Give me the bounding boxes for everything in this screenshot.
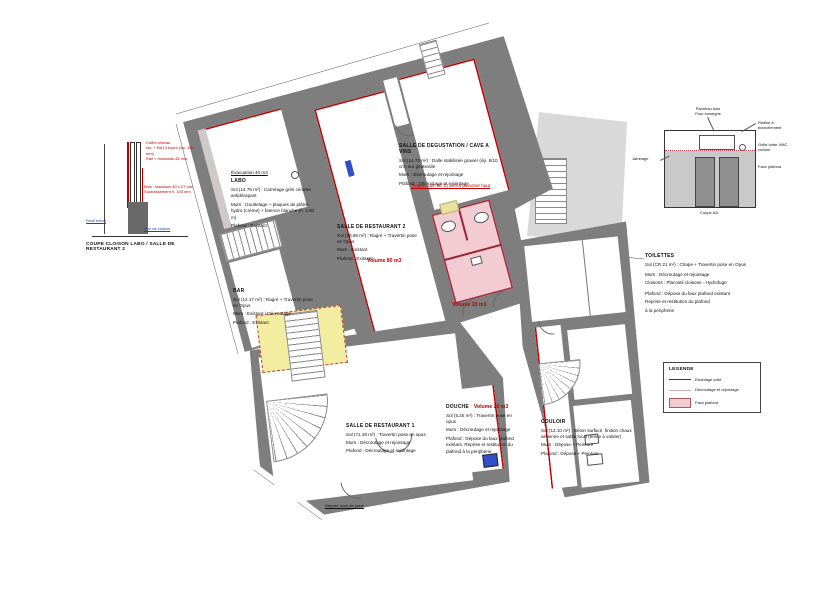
doublage-swatch [669,379,691,380]
elevation-frame [664,130,756,208]
detail-coupe-cloison: Coffre réseau Iso. + BA13 hydro (ép. 100… [86,138,201,250]
room-note: Évacuation 40 m3 [231,170,315,177]
section-note-blue: Seuil béton [86,218,122,223]
legend-item: Faux plafond [669,398,755,408]
label-labo: Évacuation 40 m3 LABO Sol (14.76 m²) : C… [231,170,315,231]
detail-caption: Coupe AA [664,210,754,215]
note-line: Rail + montants 48 mm [146,156,200,161]
room-sol: Sol (12.10 m²) : Béton surfacé, finition… [541,428,633,441]
room-cloisons: Cloisons : Placostil cloisons - Hydrofug… [645,280,775,287]
partition [582,240,591,316]
door-leaf [719,157,739,207]
elevation-note: Platine à branchement [758,120,796,131]
floor-plan-canvas: Coffre réseau Iso. + BA13 hydro (ép. 100… [0,0,834,590]
room-name: SALLE DE RESTAURANT 1 [346,423,441,429]
volume-restaurant2: Volume 80 m3 [367,258,402,264]
volume-douche: Volume 26 m3 [474,404,509,410]
room-murs: Murs : Décroutage et rejointage [346,440,441,447]
section-note-red: Bois : tasseaux 40 x 27 mm Soubassement … [144,184,200,195]
room-murs: Murs : Décroutage et rejointage [446,427,520,434]
room-name: DOUCHE [446,404,469,410]
label-couloir: COULOIR Sol (12.10 m²) : Béton surfacé, … [541,419,633,459]
room-sol: Sol (5.25 m²) : Travertin pose en opus [446,413,520,426]
note-trappe: Trappe (dim 80 S) accès plancher haut [411,183,503,190]
volume-toilettes: Volume 20 m3 [452,302,487,308]
leader-line [707,117,714,130]
note-line: Iso. + BA13 hydro (ép. 100 mm) [146,145,200,156]
note-seuil: Reprise seuil de porte [325,503,373,508]
room-name: COULOIR [541,419,633,425]
room-name: SALLE DE DEGUSTATION / CAVE A VINS [399,143,501,155]
room-murs: Murs : Gouttelage + plaques de plâtre hy… [231,202,315,222]
legend-title: LEGENDE [669,367,755,372]
room-name: TOILETTES [645,253,775,259]
label-bar: BAR Sol (12.17 m²) : Ragré + Travertin p… [233,288,317,328]
legend: LEGENDE Doublage collé Décroutage et rej… [663,362,761,413]
note-line: Pour enseigne [686,111,730,116]
wc-fixture [440,219,457,234]
room-plafond: Plafond : Décroutage et rejointage [346,448,441,455]
decroutage-swatch [669,390,691,391]
section-note-blue: Nez de cloison [144,226,188,231]
room-murs: Murs : Existant / Décroutage [233,311,317,318]
room-murs: Murs : Dépose + Peinture [541,442,633,449]
room-murs: Murs : Décroutage et rejointage [645,272,775,279]
room-plafond: Plafond : Existant [233,320,317,327]
room-sol: Sol (14.73 m²) : Dalle stabilisée gravie… [399,158,501,171]
room-right-upper [524,236,625,321]
room-sol: Sol (14.76 m²) : Carrelage grès cérame a… [231,187,315,200]
faux-plafond-swatch [669,398,691,408]
legend-label: Faux plafond [695,400,718,405]
room-name: BAR [233,288,317,294]
room-sol: Sol (71.26 m²) : Travertin pose en opus [346,432,441,439]
spot-circle [739,144,746,151]
room-murs: Murs : Décroutage et rejointage [399,172,501,179]
note-line: Soubassement h. 100 mm [144,189,200,194]
room-plafond: Plafond : Dépose du faux plafond existan… [446,436,520,456]
wc-partition [458,207,469,240]
room-plafond: Plafond : Dépose + Peinture [541,451,633,458]
room-sol: Sol (CR.21 m²) : Chape + Travertin pose … [645,262,775,269]
elevation-note: Panneau bois Pour enseigne [686,106,730,117]
doublage-line [127,142,129,208]
label-restaurant1: SALLE DE RESTAURANT 1 Sol (71.26 m²) : T… [346,423,441,456]
elevation-note: Jambage [632,156,662,161]
section-note-red: Coffre réseau Iso. + BA13 hydro (ép. 100… [146,140,200,162]
note-circle [291,171,299,179]
signage-box [699,135,735,150]
room-sol: Sol (12.17 m²) : Ragré + Travertin pose … [233,297,317,310]
legend-item: Décroutage et rejointage [669,387,755,392]
elevation-note: Grille hotte VMC cuisine [758,142,794,153]
room-name: SALLE DE RESTAURANT 2 [337,224,417,230]
wc-fixture [473,210,490,225]
room-plafond: Plafond : Existant [231,223,315,230]
room-name: LABO [231,178,315,184]
elevation-note: Faux plafond [758,164,790,169]
room-plafond: Reprise et restitution du plafond [645,299,775,306]
label-toilettes: TOILETTES Sol (CR.21 m²) : Chape + Trave… [645,253,775,316]
label-douche: DOUCHE Volume 26 m3 Sol (5.25 m²) : Trav… [446,404,520,457]
room-murs: Murs : Existant [337,247,417,254]
legend-label: Doublage collé [695,377,721,382]
door-leaf [695,157,715,207]
washbasin [470,255,483,266]
detail-caption: COUPE CLOISON LABO / SALLE DE RESTAURANT… [86,242,201,252]
room-plafond: Plafond : Dépose du faux plafond existan… [645,291,775,298]
room-sol: Sol (29.98 m²) : Ragré + Travertin pose … [337,233,417,246]
room-plafond: à la périphérie [645,308,775,315]
floor-line [92,236,188,237]
legend-label: Décroutage et rejointage [695,387,739,392]
legend-item: Doublage collé [669,377,755,382]
detail-coupe-aa: Panneau bois Pour enseigne Platine à bra… [646,108,796,220]
